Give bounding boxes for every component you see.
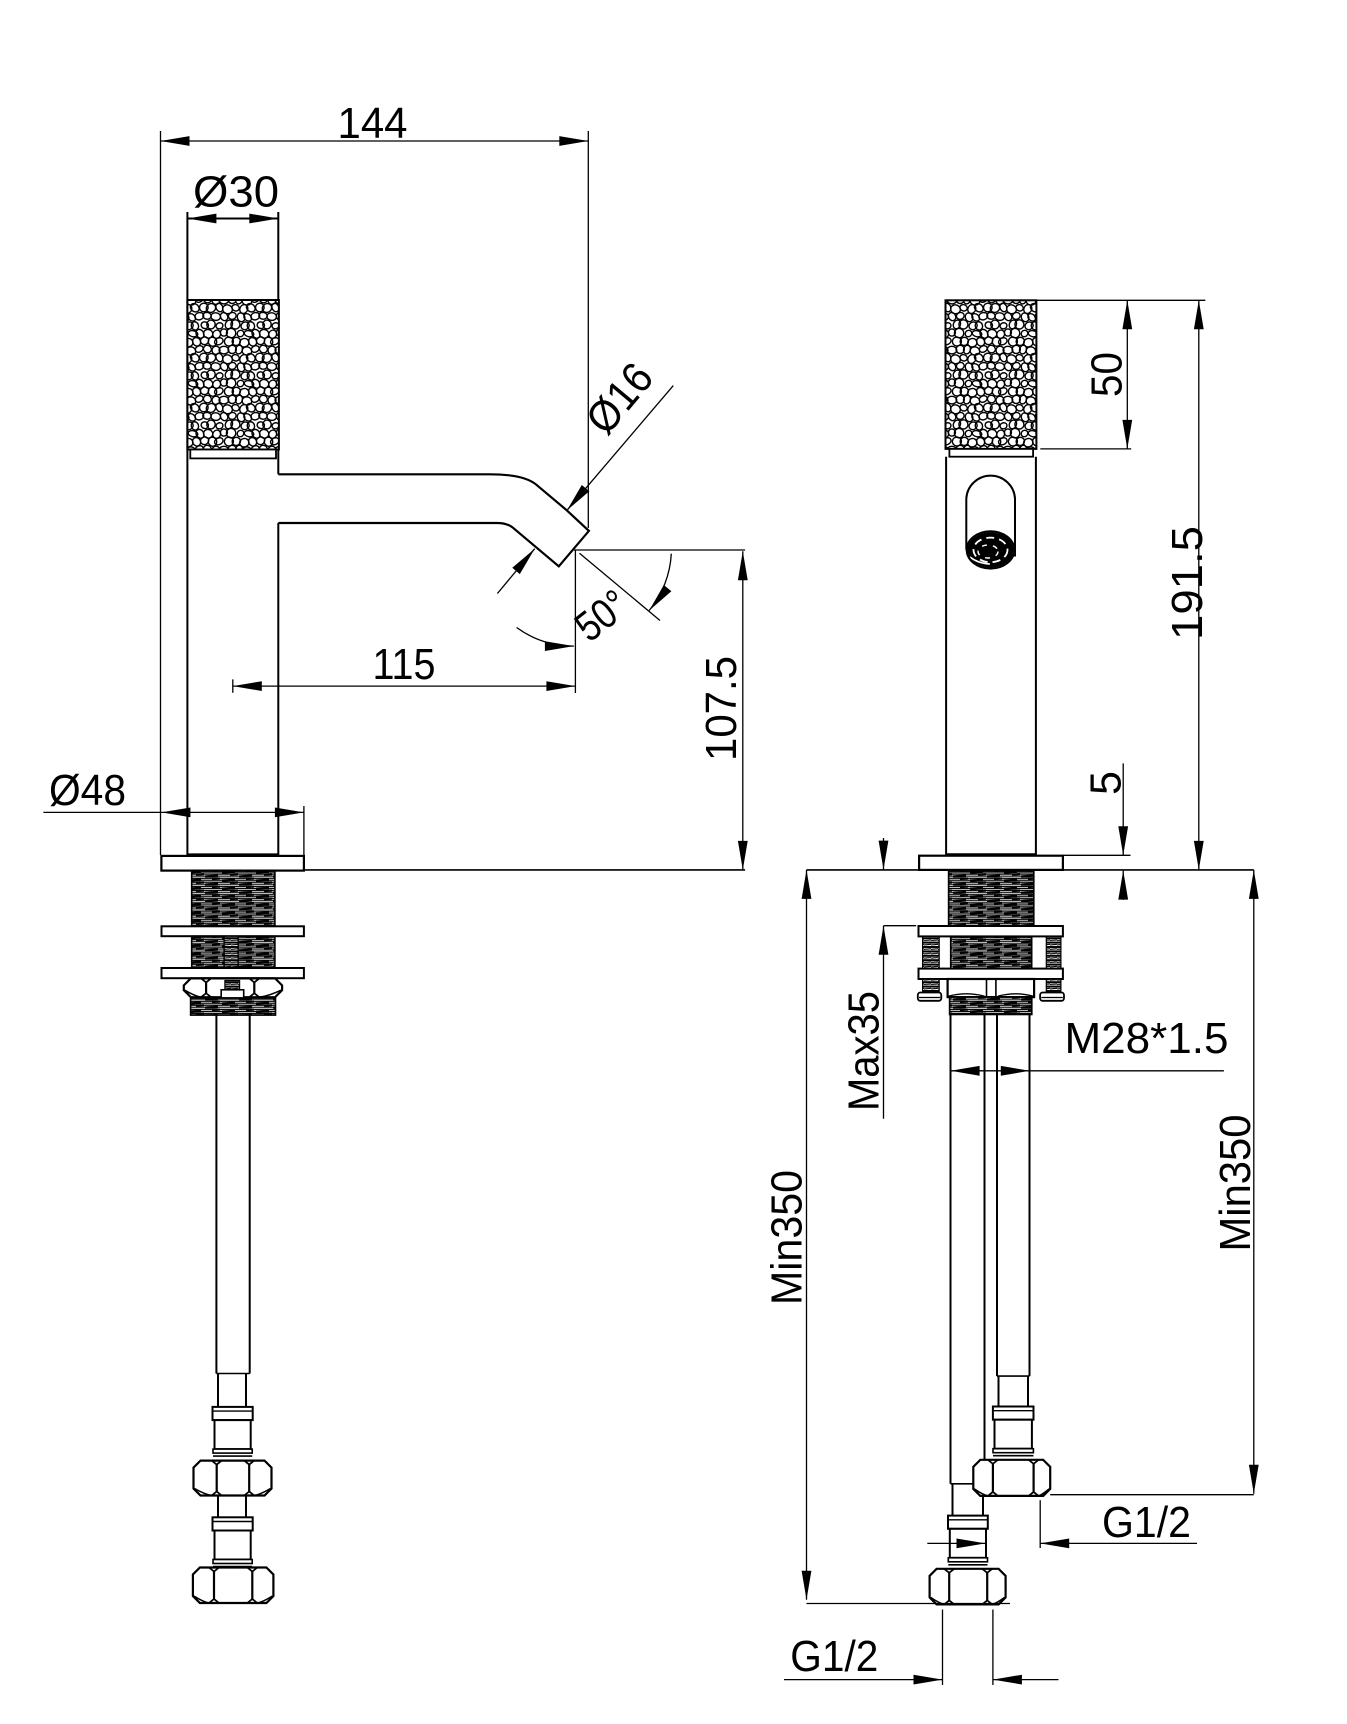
svg-text:G1/2: G1/2 xyxy=(1102,1498,1191,1547)
svg-text:Min350: Min350 xyxy=(1211,1115,1260,1252)
svg-text:144: 144 xyxy=(338,99,408,148)
svg-text:50: 50 xyxy=(1083,352,1132,397)
svg-text:G1/2: G1/2 xyxy=(790,1632,878,1681)
svg-text:191.5: 191.5 xyxy=(1163,526,1212,640)
svg-text:Min350: Min350 xyxy=(763,1170,812,1305)
svg-text:M28*1.5: M28*1.5 xyxy=(1065,1014,1229,1063)
svg-text:115: 115 xyxy=(373,640,436,689)
svg-text:107.5: 107.5 xyxy=(697,656,746,761)
svg-text:Ø30: Ø30 xyxy=(193,168,279,217)
svg-text:Max35: Max35 xyxy=(840,991,889,1111)
svg-text:5: 5 xyxy=(1082,771,1131,795)
svg-text:Ø48: Ø48 xyxy=(49,766,126,815)
